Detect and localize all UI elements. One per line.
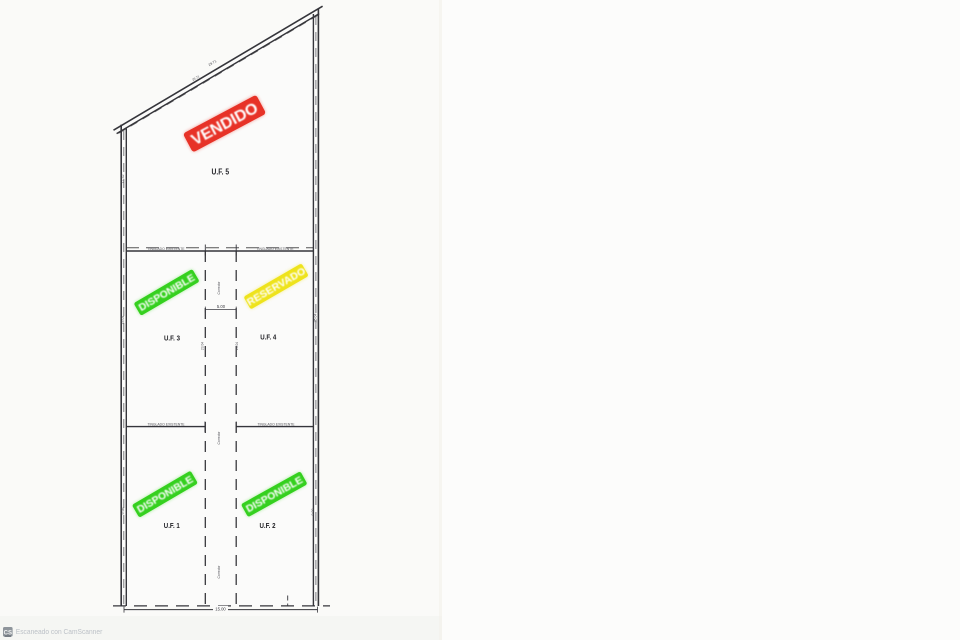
svg-text:TINGLADO EXISTENTE: TINGLADO EXISTENTE [257,422,295,426]
svg-text:TINGLADO EXISTENTE: TINGLADO EXISTENTE [256,247,294,251]
svg-text:15.00: 15.00 [215,607,226,612]
svg-text:9.98: 9.98 [311,509,315,516]
svg-text:U.F. 4: U.F. 4 [260,334,276,341]
svg-text:TINGLADO EXISTENTE: TINGLADO EXISTENTE [147,247,185,251]
svg-text:5.00: 5.00 [217,304,226,309]
svg-text:U.F. 3: U.F. 3 [164,335,180,342]
svg-text:25.04: 25.04 [313,314,317,323]
svg-text:9.98: 9.98 [121,508,125,515]
svg-text:Corredor: Corredor [217,565,221,579]
svg-text:17.32: 17.32 [121,175,125,184]
svg-text:Corredor: Corredor [217,431,221,445]
svg-text:23.04: 23.04 [235,342,239,350]
svg-text:Escaneado con CamScanner: Escaneado con CamScanner [16,627,103,636]
svg-text:U.F. 5: U.F. 5 [212,167,230,176]
svg-text:23.04: 23.04 [200,342,204,350]
svg-text:TINGLADO EXISTENTE: TINGLADO EXISTENTE [147,422,185,426]
svg-text:15.01: 15.01 [121,316,125,325]
svg-text:U.F. 1: U.F. 1 [164,523,180,530]
svg-text:Corredor: Corredor [217,281,221,295]
svg-text:U.F. 2: U.F. 2 [260,523,276,530]
